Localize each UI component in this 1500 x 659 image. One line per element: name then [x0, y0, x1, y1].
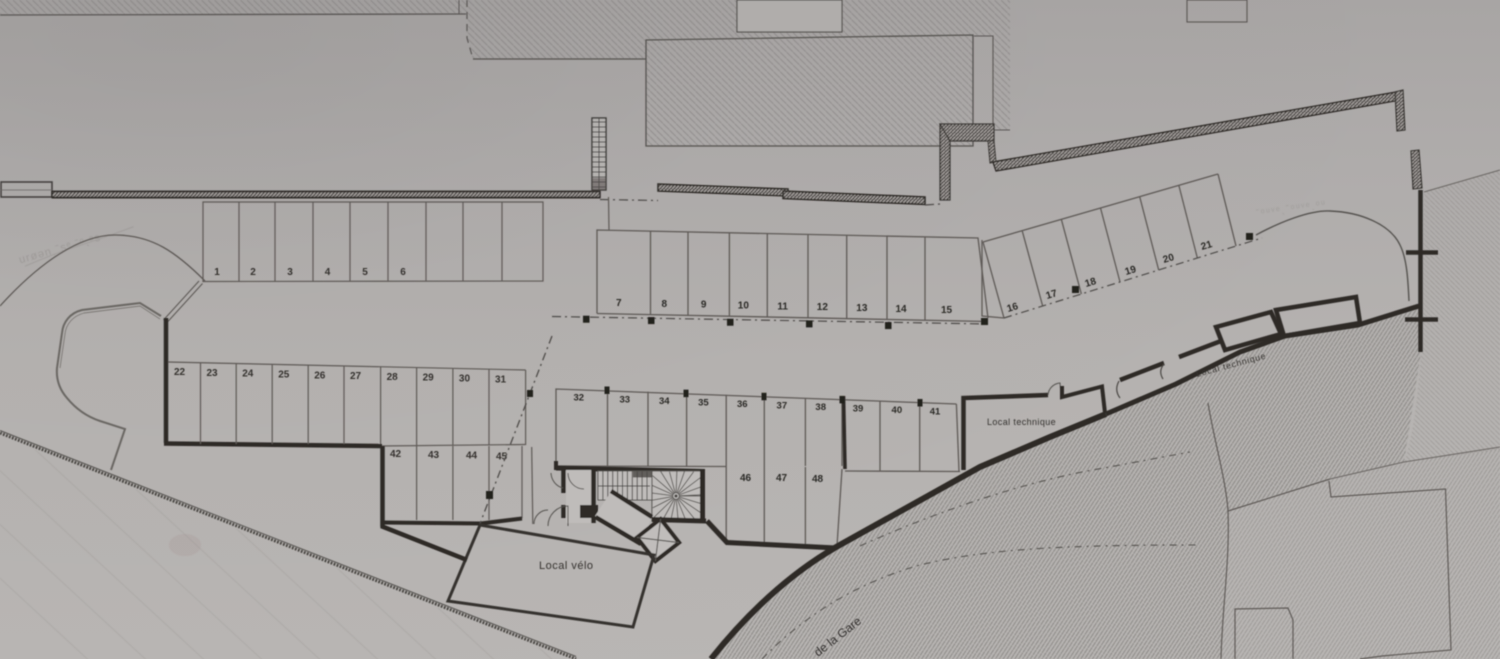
- svg-text:15: 15: [941, 305, 953, 316]
- svg-text:23: 23: [207, 368, 219, 379]
- svg-text:40: 40: [892, 405, 903, 416]
- svg-text:10: 10: [738, 301, 750, 312]
- svg-text:22: 22: [174, 367, 186, 378]
- svg-text:42: 42: [390, 449, 402, 460]
- svg-text:39: 39: [853, 404, 864, 415]
- svg-text:8: 8: [661, 299, 667, 310]
- svg-text:44: 44: [466, 451, 478, 462]
- svg-text:24: 24: [242, 369, 254, 380]
- svg-text:26: 26: [314, 370, 326, 381]
- svg-text:36: 36: [737, 399, 748, 410]
- svg-text:9: 9: [701, 300, 707, 311]
- svg-text:43: 43: [428, 450, 440, 461]
- svg-text:30: 30: [459, 374, 471, 385]
- svg-text:3: 3: [287, 267, 293, 278]
- svg-text:6: 6: [400, 267, 406, 278]
- svg-text:29: 29: [423, 373, 435, 384]
- svg-text:4: 4: [325, 267, 331, 278]
- svg-text:1: 1: [214, 267, 220, 278]
- svg-text:31: 31: [495, 374, 507, 385]
- svg-text:41: 41: [930, 407, 941, 418]
- svg-text:35: 35: [698, 397, 709, 408]
- svg-text:47: 47: [776, 473, 788, 484]
- svg-text:2: 2: [250, 267, 256, 278]
- svg-text:5: 5: [362, 267, 368, 278]
- svg-text:38: 38: [815, 402, 826, 413]
- svg-text:34: 34: [659, 396, 670, 407]
- svg-text:25: 25: [278, 369, 290, 380]
- svg-text:28: 28: [387, 372, 399, 383]
- svg-text:33: 33: [619, 394, 630, 405]
- svg-text:Local technique: Local technique: [987, 417, 1056, 427]
- svg-text:14: 14: [895, 304, 907, 315]
- svg-text:12: 12: [817, 302, 829, 313]
- svg-text:32: 32: [573, 392, 584, 403]
- svg-text:7: 7: [616, 298, 622, 309]
- svg-text:37: 37: [777, 401, 788, 412]
- svg-text:48: 48: [812, 474, 824, 485]
- svg-text:Local vélo: Local vélo: [539, 560, 594, 572]
- svg-text:13: 13: [856, 303, 868, 314]
- svg-text:11: 11: [777, 301, 788, 312]
- svg-text:46: 46: [740, 473, 752, 484]
- svg-text:27: 27: [350, 371, 362, 382]
